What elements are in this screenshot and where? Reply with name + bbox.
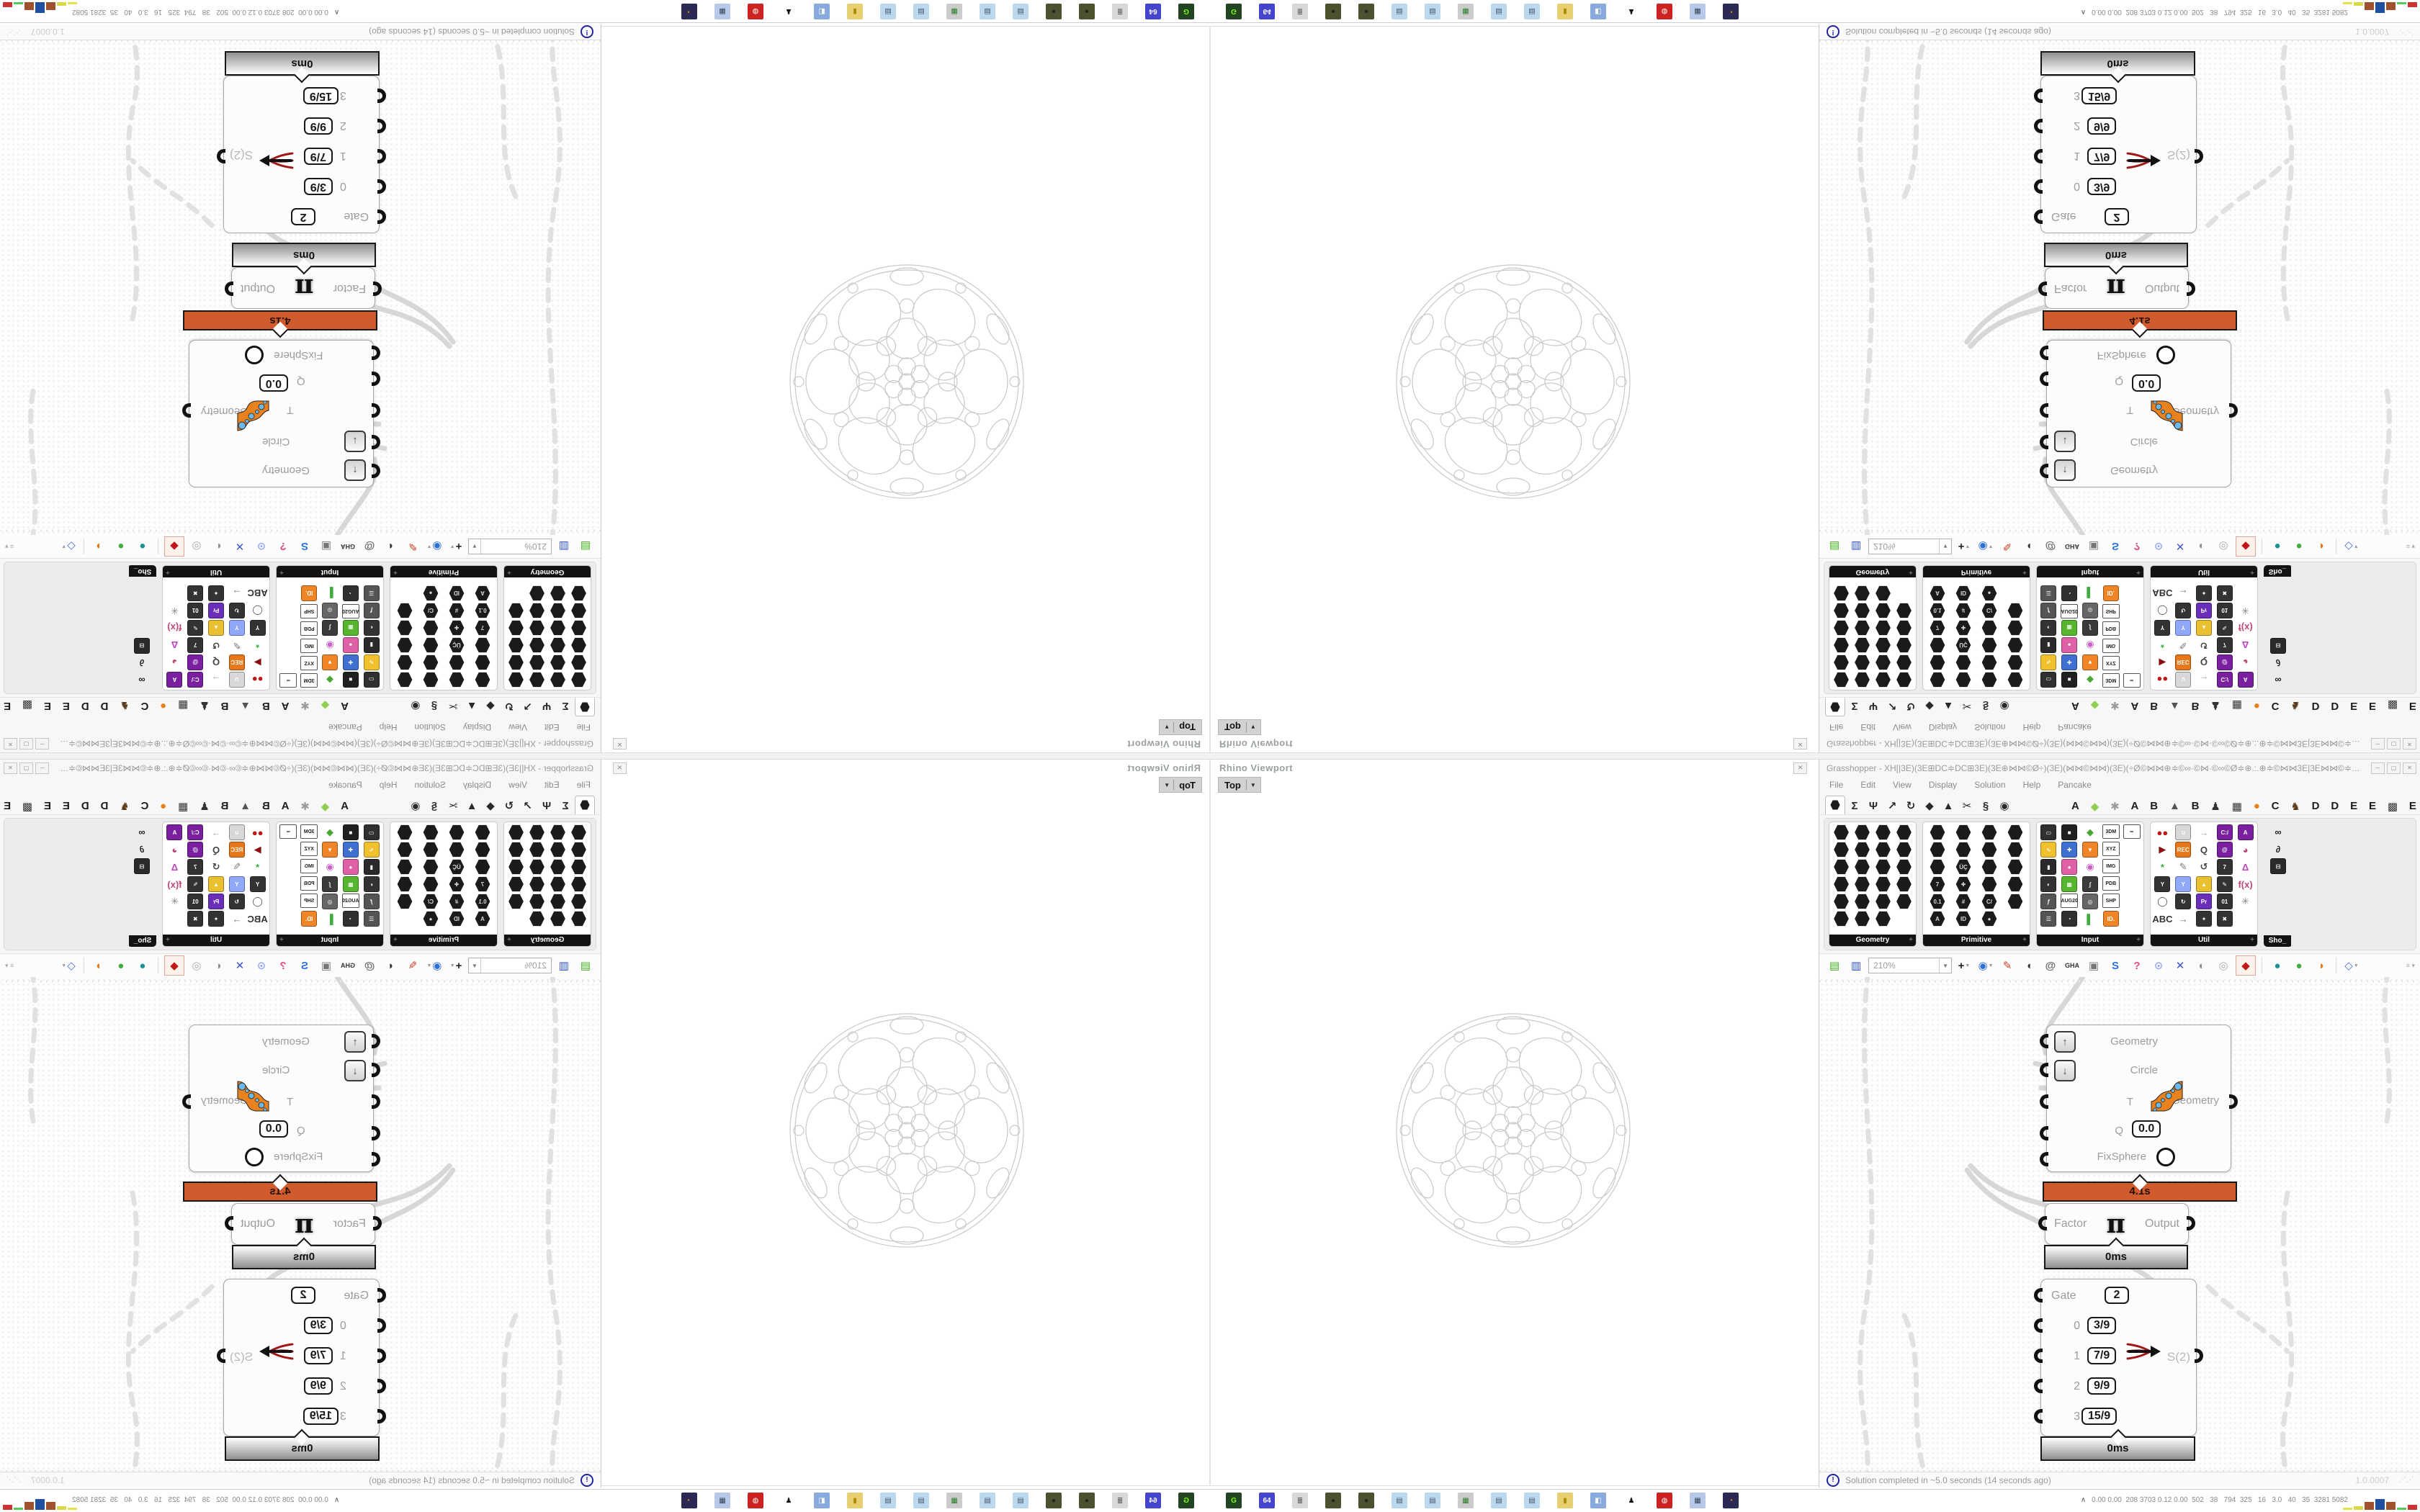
- expand-icon[interactable]: +: [2136, 566, 2141, 577]
- component-icon[interactable]: *: [250, 859, 266, 875]
- component-icon[interactable]: ƒ: [2040, 603, 2056, 618]
- component-icon[interactable]: [508, 620, 524, 636]
- component-icon[interactable]: ∫: [2082, 876, 2098, 892]
- menu-item[interactable]: View: [1893, 780, 1912, 790]
- component-icon[interactable]: AUG20: [342, 894, 359, 908]
- component-icon[interactable]: ✎: [229, 859, 245, 875]
- gha-loader-button[interactable]: GHA: [2063, 537, 2081, 556]
- component-icon[interactable]: ✦: [2196, 911, 2212, 927]
- firefox-app[interactable]: ◔: [1723, 1493, 1739, 1508]
- close-icon[interactable]: ✕: [613, 762, 627, 774]
- floppy64-app[interactable]: 64: [1259, 4, 1275, 19]
- component-icon[interactable]: ID.: [2103, 911, 2119, 927]
- window-button[interactable]: ✕: [4, 738, 17, 750]
- monitor-app[interactable]: ▦: [1458, 1493, 1474, 1508]
- gumball-button[interactable]: ◖: [382, 956, 400, 975]
- save-file-button[interactable]: ▥: [1847, 956, 1865, 975]
- component-icon[interactable]: ▲: [208, 620, 224, 636]
- component-icon[interactable]: ▌: [2082, 911, 2098, 927]
- component-icon[interactable]: ◕: [2238, 654, 2254, 670]
- component-icon[interactable]: ■: [343, 672, 359, 688]
- notepad-app[interactable]: ▤: [1491, 4, 1507, 19]
- component-icon[interactable]: →: [2175, 585, 2191, 601]
- notepad-app[interactable]: ▤: [980, 1493, 995, 1508]
- component-icon[interactable]: ∞: [2123, 824, 2141, 839]
- plugin-tab[interactable]: ▦: [178, 699, 188, 712]
- firefox-app[interactable]: ◔: [681, 4, 697, 19]
- plugin-tab[interactable]: E: [2409, 800, 2416, 813]
- component-icon[interactable]: ◔: [343, 585, 359, 601]
- component-icon[interactable]: SHP: [2102, 604, 2120, 618]
- category-tab[interactable]: Ψ: [1864, 698, 1883, 715]
- component-icon[interactable]: [1855, 620, 1870, 636]
- component-icon[interactable]: 7: [2217, 637, 2233, 653]
- component-icon[interactable]: Y: [229, 620, 245, 636]
- component-icon[interactable]: [571, 637, 587, 653]
- plugin-tab[interactable]: ▲: [240, 800, 251, 813]
- grasshopper-canvas[interactable]: ↑ ↓ Geometry Circle T Q 0.0 FixSphere Ge…: [0, 40, 601, 535]
- component-icon[interactable]: [2007, 842, 2023, 858]
- menu-item[interactable]: Display: [463, 780, 491, 790]
- component-icon[interactable]: ◉: [322, 859, 338, 875]
- component-icon[interactable]: [550, 859, 566, 875]
- component-icon[interactable]: [1875, 859, 1891, 875]
- component-icon[interactable]: #: [1955, 603, 1971, 618]
- component-icon[interactable]: ▦: [343, 876, 359, 892]
- menu-item[interactable]: File: [1829, 780, 1843, 790]
- viewport-tab-top[interactable]: Top ▼: [1159, 719, 1202, 735]
- component-icon[interactable]: Δ: [2238, 859, 2254, 875]
- plugin-tab[interactable]: D: [2331, 699, 2339, 712]
- down-arrow-button[interactable]: ↓: [344, 431, 366, 452]
- component-icon[interactable]: ✚: [1955, 620, 1971, 636]
- viewport-tab-top[interactable]: Top ▼: [1218, 777, 1261, 793]
- window-view-button[interactable]: ▣: [2084, 537, 2103, 556]
- plugin-tab[interactable]: A: [2131, 699, 2139, 712]
- expand-icon[interactable]: +: [279, 566, 284, 577]
- floppy64-app[interactable]: 64: [1145, 1493, 1161, 1508]
- component-icon[interactable]: ▮: [2040, 637, 2056, 653]
- palette-panel-label[interactable]: Input+: [277, 566, 383, 577]
- plugin-tab[interactable]: ♞: [2290, 800, 2300, 813]
- component-icon[interactable]: [529, 654, 545, 670]
- component-icon[interactable]: ◯: [2154, 603, 2170, 618]
- chevron-down-icon[interactable]: ▼: [1939, 539, 1951, 554]
- plugin-tab[interactable]: ♟: [200, 800, 209, 813]
- value-box[interactable]: 7/9: [2087, 1347, 2116, 1364]
- component-icon[interactable]: 7: [187, 859, 203, 875]
- preview-eye-button[interactable]: ◉▼: [425, 956, 444, 975]
- palette-panel-label[interactable]: Input+: [2037, 935, 2143, 946]
- category-tab[interactable]: Σ: [556, 698, 575, 715]
- component-icon[interactable]: [1834, 911, 1850, 927]
- value-box[interactable]: 7/9: [304, 148, 333, 165]
- menu-item[interactable]: Pancake: [328, 780, 362, 790]
- plugin-tab[interactable]: ✱: [2110, 699, 2120, 712]
- gumball-button[interactable]: ◖: [382, 537, 400, 556]
- preview-wireframe-button[interactable]: ◎: [187, 956, 206, 975]
- component-icon[interactable]: [571, 585, 587, 601]
- find-component-button[interactable]: S: [295, 537, 314, 556]
- component-icon[interactable]: [1896, 859, 1912, 875]
- category-tab[interactable]: ◆: [481, 698, 500, 715]
- component-icon[interactable]: [475, 859, 490, 875]
- component-icon[interactable]: ∫: [2082, 620, 2098, 636]
- category-tab[interactable]: ▲: [462, 797, 481, 814]
- plugin-tab[interactable]: ✱: [2110, 800, 2120, 813]
- toolbar-overflow-icon[interactable]: ≡ ▾: [2406, 963, 2415, 968]
- material-orange-button[interactable]: ◑: [90, 956, 109, 975]
- component-icon[interactable]: [571, 842, 587, 858]
- component-icon[interactable]: Y: [2175, 876, 2191, 892]
- category-tab[interactable]: ◉: [1995, 698, 2014, 715]
- node-geometry-params[interactable]: ↑ ↓ Geometry Circle T Q 0.0 FixSphere Ge…: [2046, 340, 2231, 487]
- component-icon[interactable]: [1875, 585, 1891, 601]
- plugin-tab[interactable]: E: [4, 699, 11, 712]
- component-icon[interactable]: ✦: [208, 585, 224, 601]
- menu-item[interactable]: View: [508, 722, 527, 732]
- component-icon[interactable]: [1855, 911, 1870, 927]
- down-arrow-button[interactable]: ↓: [344, 1060, 366, 1081]
- component-icon[interactable]: [1875, 876, 1891, 892]
- component-icon[interactable]: ☰: [364, 585, 380, 601]
- component-icon[interactable]: #: [449, 603, 465, 618]
- component-icon[interactable]: [529, 842, 545, 858]
- calculator-app[interactable]: ▦: [714, 1493, 730, 1508]
- component-icon[interactable]: ●●: [250, 824, 266, 840]
- material-teal-button[interactable]: ●: [133, 537, 152, 556]
- component-icon[interactable]: ●: [343, 859, 359, 875]
- plugin-tab[interactable]: ♟: [2210, 699, 2220, 712]
- component-icon[interactable]: [508, 824, 524, 840]
- orb-app[interactable]: ●: [1358, 1493, 1374, 1508]
- preview-wireframe-button[interactable]: ◎: [187, 537, 206, 556]
- component-icon[interactable]: ◆: [2082, 824, 2098, 840]
- component-icon[interactable]: ✚: [449, 876, 465, 892]
- grasshopper-titlebar[interactable]: Grasshopper - XH[|3E)(3E⊞DC≑DC⊞3E)(3E⊕⋈⋈…: [1819, 735, 2420, 752]
- chevron-down-icon[interactable]: ▼: [61, 544, 66, 549]
- component-icon[interactable]: [1955, 672, 1971, 688]
- component-icon[interactable]: 01: [2217, 603, 2233, 618]
- gumball-button[interactable]: ◖: [2020, 956, 2038, 975]
- plugin-tab[interactable]: ◆: [321, 800, 330, 813]
- component-icon[interactable]: XYZ: [300, 842, 318, 856]
- component-icon[interactable]: [397, 842, 413, 858]
- notepad-app[interactable]: ▤: [913, 4, 929, 19]
- component-icon[interactable]: [1930, 824, 1945, 840]
- plugin-tab[interactable]: D: [2312, 800, 2320, 813]
- component-icon[interactable]: [550, 876, 566, 892]
- plugin-tab[interactable]: ♟: [200, 699, 209, 712]
- boolean-toggle[interactable]: [2156, 346, 2175, 364]
- grasshopper-titlebar[interactable]: Grasshopper - XH[|3E)(3E⊞DC≑DC⊞3E)(3E⊕⋈⋈…: [0, 735, 601, 752]
- wire-display-button[interactable]: ✕: [230, 537, 249, 556]
- preview-shaded-button[interactable]: ◆: [2236, 955, 2256, 976]
- component-icon[interactable]: ✚: [449, 620, 465, 636]
- menu-item[interactable]: Edit: [1860, 722, 1875, 732]
- plugin-tab[interactable]: ▩: [22, 800, 32, 813]
- menu-item[interactable]: Help: [2023, 780, 2041, 790]
- plugin-tab[interactable]: ▩: [2388, 800, 2398, 813]
- component-icon[interactable]: XYZ: [2102, 656, 2120, 670]
- material-green-button[interactable]: ●: [112, 537, 130, 556]
- component-icon[interactable]: ƒ: [2040, 894, 2056, 909]
- component-icon[interactable]: ▌: [322, 911, 338, 927]
- expand-icon[interactable]: +: [1909, 935, 1913, 946]
- grasshopper-canvas[interactable]: ↑ ↓ Geometry Circle T Q 0.0 FixSphere Ge…: [1819, 977, 2420, 1472]
- component-icon[interactable]: ∿: [364, 654, 380, 670]
- category-tab[interactable]: ◆: [1920, 797, 1939, 814]
- component-icon[interactable]: [1875, 894, 1891, 909]
- window-button[interactable]: ▢: [19, 762, 33, 774]
- component-icon[interactable]: [423, 824, 439, 840]
- expand-icon[interactable]: +: [393, 935, 398, 946]
- category-tab[interactable]: ▲: [1939, 698, 1958, 715]
- open-file-button[interactable]: ▤: [1825, 956, 1844, 975]
- component-icon[interactable]: [508, 672, 524, 688]
- notepad-app[interactable]: ▤: [880, 1493, 896, 1508]
- component-icon[interactable]: [397, 894, 413, 909]
- component-icon[interactable]: ▶: [250, 654, 266, 670]
- folder-app[interactable]: ▮: [847, 4, 863, 19]
- component-icon[interactable]: [2007, 859, 2023, 875]
- plugin-tab[interactable]: ◆: [321, 699, 330, 712]
- component-icon[interactable]: ∂: [2270, 655, 2286, 671]
- component-icon[interactable]: ■: [2061, 824, 2077, 840]
- plugin-tab[interactable]: E: [2409, 699, 2416, 712]
- component-icon[interactable]: ▲: [2196, 620, 2212, 636]
- component-icon[interactable]: [550, 894, 566, 909]
- component-icon[interactable]: A: [1930, 911, 1945, 927]
- plugin-tab[interactable]: B: [220, 800, 228, 813]
- window-button[interactable]: ▢: [2387, 762, 2401, 774]
- component-icon[interactable]: ▲: [2196, 876, 2212, 892]
- component-icon[interactable]: ▼: [322, 654, 338, 670]
- resize-grip[interactable]: ⋰⋰: [2399, 1476, 2414, 1484]
- component-icon[interactable]: ✖: [2217, 911, 2233, 927]
- plugin-tab[interactable]: A: [341, 800, 349, 813]
- component-icon[interactable]: C/: [423, 603, 439, 618]
- plugin-tab[interactable]: E: [2350, 699, 2357, 712]
- value-box[interactable]: 9/9: [304, 117, 333, 135]
- component-icon[interactable]: [550, 620, 566, 636]
- meter-app[interactable]: G: [1226, 4, 1242, 19]
- component-icon[interactable]: ✳: [166, 603, 182, 618]
- value-box[interactable]: 9/9: [2087, 1377, 2116, 1395]
- component-icon[interactable]: ABC: [2154, 911, 2170, 927]
- plugin-tab[interactable]: ▦: [178, 800, 188, 813]
- component-icon[interactable]: [1855, 894, 1870, 909]
- component-icon[interactable]: Δ: [2238, 637, 2254, 653]
- component-icon[interactable]: ◎: [2082, 603, 2098, 618]
- plug-app[interactable]: ◧: [1590, 4, 1606, 19]
- window-button[interactable]: ─: [2371, 762, 2385, 774]
- component-icon[interactable]: [571, 672, 587, 688]
- zoom-level-select[interactable]: 210%▼: [468, 958, 552, 973]
- component-icon[interactable]: ↻: [2175, 603, 2191, 618]
- palette-panel-label[interactable]: Util+: [163, 566, 269, 577]
- component-icon[interactable]: ƒ: [364, 603, 380, 618]
- component-icon[interactable]: [1930, 654, 1945, 670]
- component-icon[interactable]: REC: [229, 842, 245, 858]
- zoom-extents-button[interactable]: +▼: [1955, 537, 1973, 556]
- component-icon[interactable]: ∫: [322, 620, 338, 636]
- penguin-app[interactable]: ♟: [1623, 4, 1639, 19]
- component-icon[interactable]: ✦: [2196, 585, 2212, 601]
- component-icon[interactable]: Y: [2175, 620, 2191, 636]
- component-icon[interactable]: [423, 859, 439, 875]
- plugin-tab[interactable]: E: [44, 800, 51, 813]
- category-tab[interactable]: Σ: [1845, 797, 1864, 814]
- component-icon[interactable]: C:/: [2217, 824, 2233, 840]
- palette-panel-label[interactable]: Geometry+: [504, 566, 591, 577]
- close-icon[interactable]: ✕: [613, 738, 627, 750]
- component-icon[interactable]: →: [208, 672, 224, 688]
- component-icon[interactable]: ▮: [364, 859, 380, 875]
- component-icon[interactable]: ▭: [2040, 672, 2056, 688]
- component-icon[interactable]: ◐: [364, 876, 380, 892]
- help-box-button[interactable]: ?: [2128, 956, 2146, 975]
- component-icon[interactable]: ∪: [2175, 672, 2191, 688]
- value-box[interactable]: 15/9: [303, 1408, 339, 1425]
- orb-app[interactable]: ●: [1358, 4, 1374, 19]
- notepad-app[interactable]: ▤: [1524, 4, 1540, 19]
- chevron-down-icon[interactable]: ▼: [1249, 782, 1258, 788]
- component-icon[interactable]: ◉: [322, 637, 338, 653]
- component-icon[interactable]: ⊟: [2270, 858, 2286, 874]
- component-icon[interactable]: ID: [1955, 585, 1971, 601]
- expand-icon[interactable]: +: [507, 935, 511, 946]
- gha-loader-button[interactable]: GHA: [339, 537, 357, 556]
- material-green-button[interactable]: ●: [112, 956, 130, 975]
- component-icon[interactable]: ✦: [208, 911, 224, 927]
- component-icon[interactable]: [423, 842, 439, 858]
- notepad-app[interactable]: ▤: [1391, 4, 1407, 19]
- component-icon[interactable]: →: [229, 911, 245, 927]
- sketch-pen-button[interactable]: ✎: [403, 956, 422, 975]
- notepad-app[interactable]: ▤: [1391, 1493, 1407, 1508]
- component-icon[interactable]: ◕: [166, 654, 182, 670]
- component-icon[interactable]: [508, 894, 524, 909]
- component-icon[interactable]: [529, 620, 545, 636]
- plugin-tab[interactable]: B: [2192, 699, 2200, 712]
- plugin-tab[interactable]: ●: [160, 800, 166, 813]
- component-icon[interactable]: [1834, 876, 1850, 892]
- component-icon[interactable]: ◔: [2061, 911, 2077, 927]
- value-box[interactable]: 0.0: [259, 1120, 288, 1138]
- component-icon[interactable]: PDB: [300, 876, 318, 891]
- plugin-tab[interactable]: ✱: [300, 800, 310, 813]
- wire-display-button[interactable]: ✕: [2171, 956, 2190, 975]
- category-tab[interactable]: ◆: [1920, 698, 1939, 715]
- component-icon[interactable]: f(x): [166, 620, 182, 636]
- component-icon[interactable]: [1834, 603, 1850, 618]
- category-tab[interactable]: ↻: [1901, 698, 1920, 715]
- component-icon[interactable]: Y: [2154, 876, 2170, 892]
- component-icon[interactable]: [475, 824, 490, 840]
- component-icon[interactable]: A: [475, 585, 490, 601]
- component-icon[interactable]: ✚: [1955, 876, 1971, 892]
- component-icon[interactable]: *: [2154, 637, 2170, 653]
- palette-panel-label[interactable]: Primitive+: [1923, 935, 2030, 946]
- plugin-tab[interactable]: ▩: [2388, 699, 2398, 712]
- resize-grip[interactable]: ⋰⋰: [6, 28, 21, 36]
- window-view-button[interactable]: ▣: [317, 956, 336, 975]
- component-icon[interactable]: ▌: [2082, 585, 2098, 601]
- node-stream-gate[interactable]: Gate 2 0 3/9 1 7/9 S(2) 2 9/9: [2040, 76, 2197, 233]
- component-icon[interactable]: [550, 585, 566, 601]
- component-icon[interactable]: ▭: [2040, 824, 2056, 840]
- component-icon[interactable]: [1930, 842, 1945, 858]
- plug-app[interactable]: ◧: [1590, 1493, 1606, 1508]
- close-icon[interactable]: ✕: [1793, 762, 1807, 774]
- calculator-app[interactable]: ▦: [714, 4, 730, 19]
- component-icon[interactable]: [1981, 842, 1997, 858]
- component-icon[interactable]: →: [229, 585, 245, 601]
- category-tab[interactable]: ↻: [1901, 797, 1920, 814]
- plugin-tab[interactable]: ◆: [2091, 699, 2099, 712]
- node-stream-gate[interactable]: Gate 2 0 3/9 1 7/9 S(2) 2 9/9: [2040, 1279, 2197, 1436]
- component-icon[interactable]: ●: [1981, 911, 1997, 927]
- component-icon[interactable]: ◎: [2082, 894, 2098, 909]
- component-icon[interactable]: [1930, 672, 1945, 688]
- component-icon[interactable]: [550, 824, 566, 840]
- preview-off-button[interactable]: ◐: [2192, 956, 2211, 975]
- notepad-app[interactable]: ▤: [1491, 1493, 1507, 1508]
- component-icon[interactable]: 3DM: [2102, 824, 2120, 839]
- preview-off-button[interactable]: ◐: [209, 537, 228, 556]
- window-button[interactable]: ─: [2371, 738, 2385, 750]
- component-icon[interactable]: ID.: [301, 585, 317, 601]
- cluster-at-button[interactable]: @: [2041, 956, 2060, 975]
- component-icon[interactable]: [1855, 876, 1870, 892]
- component-icon[interactable]: 7: [1930, 876, 1945, 892]
- plugin-tab[interactable]: D: [2331, 800, 2339, 813]
- component-icon[interactable]: ∞: [134, 672, 150, 688]
- component-icon[interactable]: ◔: [343, 911, 359, 927]
- palette-panel-label[interactable]: Util+: [2151, 935, 2257, 946]
- component-icon[interactable]: REC: [229, 654, 245, 670]
- up-arrow-button[interactable]: ↑: [344, 459, 366, 481]
- menu-item[interactable]: Edit: [1860, 780, 1875, 790]
- floppy64-app[interactable]: 64: [1259, 1493, 1275, 1508]
- menu-item[interactable]: Solution: [1974, 780, 2005, 790]
- resize-grip[interactable]: ⋰⋰: [6, 1476, 21, 1484]
- component-icon[interactable]: ✖: [187, 911, 203, 927]
- preview-wireframe-button[interactable]: ◎: [2214, 537, 2233, 556]
- component-icon[interactable]: [550, 654, 566, 670]
- zoom-extents-button[interactable]: +▼: [1955, 956, 1973, 975]
- component-icon[interactable]: [423, 637, 439, 653]
- value-box[interactable]: 0.0: [2132, 1120, 2161, 1138]
- component-icon[interactable]: →: [2196, 824, 2212, 840]
- plugin-tab[interactable]: C: [141, 699, 149, 712]
- component-icon[interactable]: ▼: [2082, 654, 2098, 670]
- component-icon[interactable]: ✎: [2175, 637, 2191, 653]
- window-button[interactable]: ─: [35, 738, 49, 750]
- component-icon[interactable]: SHP: [300, 604, 318, 618]
- component-icon[interactable]: ✳: [166, 894, 182, 909]
- component-icon[interactable]: ÜÇ: [1955, 637, 1971, 653]
- meter-app[interactable]: G: [1178, 1493, 1194, 1508]
- component-icon[interactable]: [1855, 654, 1870, 670]
- component-icon[interactable]: [508, 637, 524, 653]
- plugin-tab[interactable]: E: [2369, 800, 2376, 813]
- component-icon[interactable]: ●: [423, 911, 439, 927]
- component-icon[interactable]: [1855, 824, 1870, 840]
- scroll-app[interactable]: ≣: [1292, 1493, 1308, 1508]
- category-tab[interactable]: ▲: [1939, 797, 1958, 814]
